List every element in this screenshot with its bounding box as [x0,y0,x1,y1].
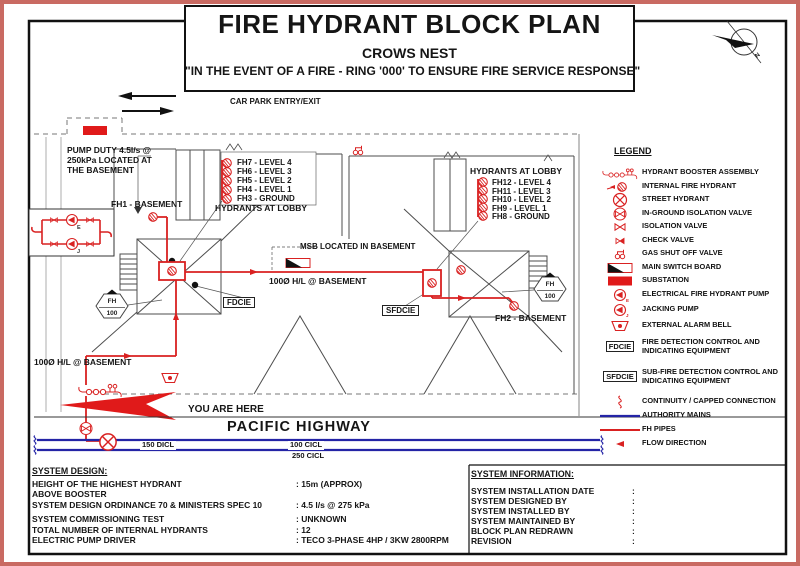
system-info-row: SYSTEM DESIGNED BY: [471,496,567,506]
system-design-row: ABOVE BOOSTER [32,489,107,499]
system-design-block: SYSTEM DESIGN: HEIGHT OF THE HIGHEST HYD… [32,466,457,550]
you-are-here-arrow [60,392,176,420]
svg-text:100: 100 [107,310,118,317]
mains-size-150dicl: 150 DICL [140,441,176,450]
svg-text:100: 100 [545,293,556,300]
pump-letter-e: E [77,225,81,231]
compass-icon: N [712,21,762,63]
right-lobby-caption: HYDRANTS AT LOBBY [470,167,562,177]
booster-chain-icon [79,384,121,397]
legend-row: FDCIE FIRE DETECTION CONTROL AND INDICAT… [598,334,784,358]
hex-marker-left: FH 100 [96,290,128,319]
you-are-here-label: YOU ARE HERE [188,404,264,416]
compass-north-label: N [754,52,761,59]
system-design-row: HEIGHT OF THE HIGHEST HYDRANT: 15m (APPR… [32,479,182,489]
capped-connection-icon [34,446,36,454]
jacking-pump-icon [67,239,78,250]
system-info-row: SYSTEM INSTALLED BY: [471,506,570,516]
sfdcie-symbol: SFDCIE [603,371,637,382]
lower-pipe-label: 100Ø H/L @ BASEMENT [34,358,131,368]
booster-assembly-detail: E J [29,209,114,256]
legend-row: MAIN SWITCH BOARD [598,260,784,274]
left-lobby-item: FH7 - LEVEL 4 [237,158,292,167]
legend-row: STREET HYDRANT [598,192,784,206]
car-park-label: CAR PARK ENTRY/EXIT [230,97,321,106]
page-title: FIRE HYDRANT BLOCK PLAN [185,10,634,40]
pump-duty-note: PUMP DUTY 4.5l/s @ 250kPa LOCATED AT THE… [67,146,164,175]
system-design-row: SYSTEM DESIGN ORDINANCE 70 & MINISTERS S… [32,500,262,510]
left-lobby-item: FH6 - LEVEL 3 [237,167,292,176]
legend-title: LEGEND [614,146,652,156]
flow-arrow [250,269,258,275]
fh1-label: FH1 - BASEMENT [111,200,182,210]
system-info-row: BLOCK PLAN REDRAWN: [471,526,573,536]
legend-row: CHECK VALVE [598,233,784,247]
block-plan-sheet: N [0,0,800,566]
left-lobby-item: FH5 - LEVEL 2 [237,176,292,185]
system-info-row: REVISION: [471,536,512,546]
legend-row: FLOW DIRECTION [598,436,784,450]
legend-row: IN-GROUND ISOLATION VALVE [598,206,784,220]
fh2-label: FH2 - BASEMENT [495,314,566,324]
msb-note: MSB LOCATED IN BASEMENT [300,242,415,251]
main-pipe-label: 100Ø H/L @ BASEMENT [269,277,366,287]
right-lobby-item: FH8 - GROUND [492,212,550,221]
driveway-lines [46,137,61,412]
legend-row: GAS SHUT OFF VALVE [598,246,784,260]
legend-row: J JACKING PUMP [598,302,784,316]
pump-letter-j: J [77,249,80,255]
flow-arrow [458,295,466,301]
svg-text:FH: FH [546,281,555,288]
legend-row: INTERNAL FIRE HYDRANT [598,179,784,193]
fdcie-box: FDCIE [223,297,255,308]
electrical-pump-icon [67,215,78,226]
highway-label: PACIFIC HIGHWAY [149,419,449,436]
system-information-heading: SYSTEM INFORMATION: [471,469,574,479]
sfdcie-box: SFDCIE [382,305,419,316]
flow-arrow [173,312,179,320]
street-hydrant-icon [100,434,116,450]
substation-icon [83,126,107,135]
system-design-heading: SYSTEM DESIGN: [32,466,107,476]
legend-row: FH PIPES [598,422,784,436]
car-park-arrows-icon [118,92,176,115]
capped-connection-icon [34,436,36,444]
inground-isolation-valve-icon [80,423,92,435]
system-design-row: ELECTRIC PUMP DRIVER: TECO 3-PHASE 4HP /… [32,535,136,545]
legend-row: HYDRANT BOOSTER ASSEMBLY [598,165,784,179]
mains-size-100cicl: 100 CICL [288,441,324,450]
gas-shutoff-valve-icon [353,146,362,155]
fdcie-symbol: FDCIE [606,341,635,352]
system-info-row: SYSTEM MAINTAINED BY: [471,516,575,526]
svg-text:FH: FH [108,298,117,305]
system-design-row: SYSTEM COMMISSIONING TEST: UNKNOWN [32,514,164,524]
site-boundary-top [34,118,579,134]
msb-icon [286,259,310,268]
legend-row: AUTHORITY MAINS [598,408,784,422]
legend-row: CONTINUITY / CAPPED CONNECTION [598,394,784,408]
left-lobby-item: FH4 - LEVEL 1 [237,185,292,194]
system-information-block: SYSTEM INFORMATION: SYSTEM INSTALLATION … [471,469,781,549]
page-subtitle: CROWS NEST [185,45,634,61]
system-info-row: SYSTEM INSTALLATION DATE: [471,486,594,496]
legend-row: SUBSTATION [598,273,784,287]
left-lobby-caption: HYDRANTS AT LOBBY [215,204,307,214]
legend-row: EXTERNAL ALARM BELL [598,318,784,332]
fire-warning-text: "IN THE EVENT OF A FIRE - RING '000' TO … [185,65,634,79]
left-lobby-item: FH3 - GROUND [237,194,295,203]
legend-row: ISOLATION VALVE [598,219,784,233]
external-alarm-bell-icon [162,374,178,383]
legend-row: SFDCIE SUB-FIRE DETECTION CONTROL AND IN… [598,364,784,388]
system-design-row: TOTAL NUMBER OF INTERNAL HYDRANTS: 12 [32,525,208,535]
legend-row: E ELECTRICAL FIRE HYDRANT PUMP [598,287,784,301]
mains-size-250cicl: 250 CICL [290,452,326,461]
hex-marker-right: FH 100 [534,273,566,302]
